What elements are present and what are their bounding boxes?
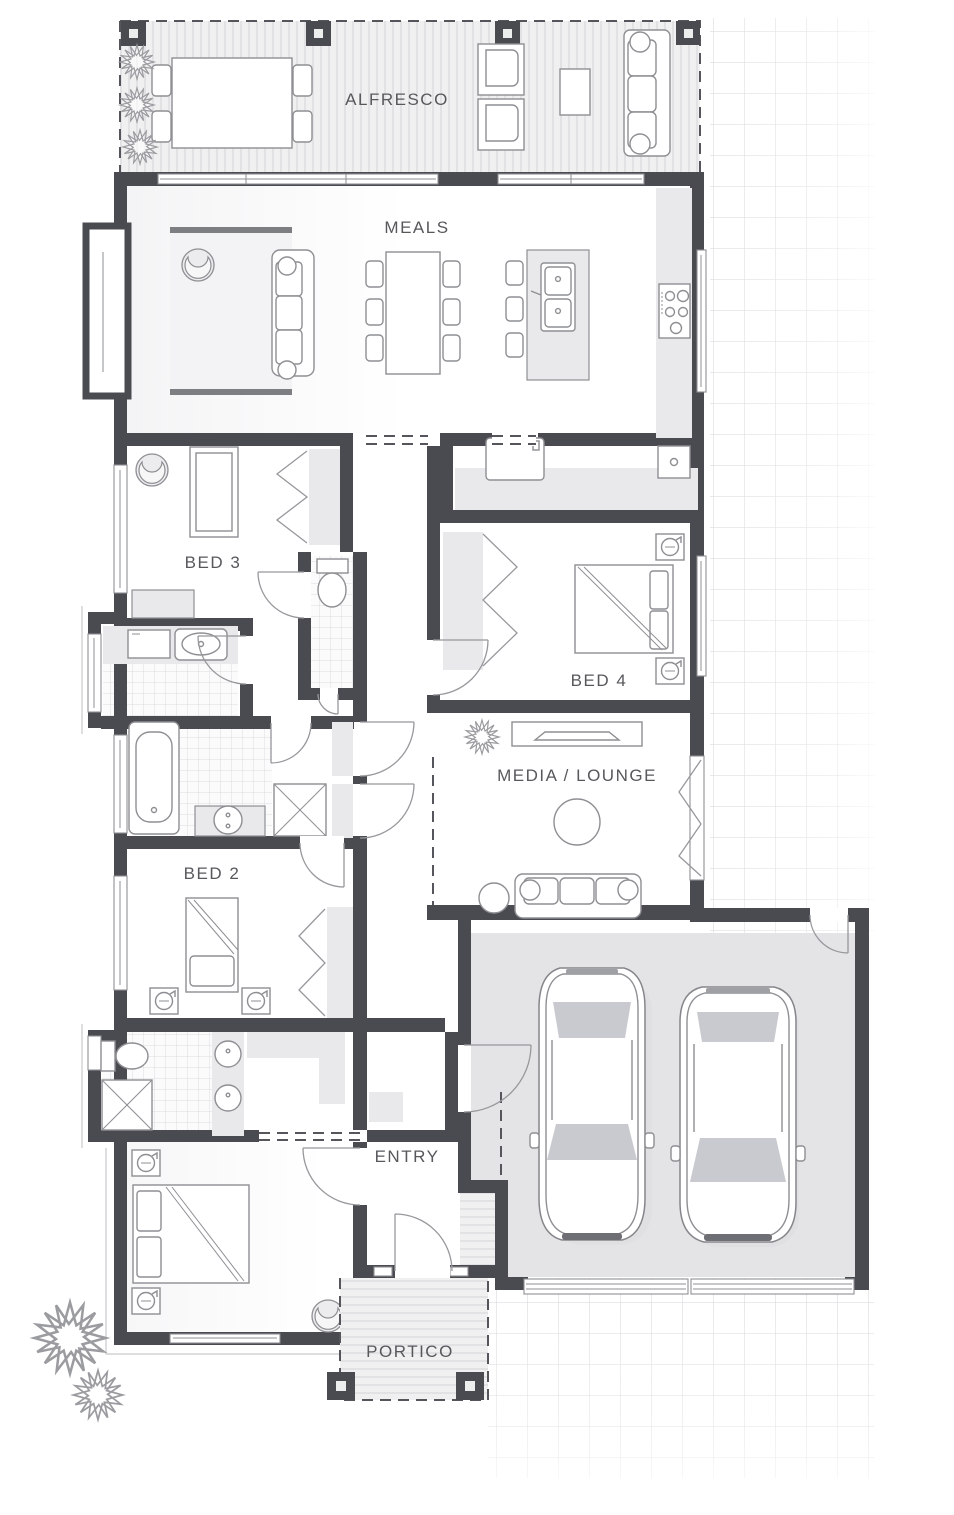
bed3-robe-bifold <box>277 451 307 543</box>
bath-basin <box>214 806 242 834</box>
kitchen-island <box>506 250 589 380</box>
room-label-bed3: BED 3 <box>185 553 242 572</box>
bed3-dresser <box>132 590 194 618</box>
wc-door <box>318 694 338 714</box>
bed4-lamp-top <box>656 534 684 560</box>
laundry-tub <box>658 446 690 478</box>
dining-table <box>366 252 460 374</box>
floor-plan: ALFRESCO <box>0 0 954 1515</box>
garden-plant-small <box>66 1363 130 1427</box>
meals-bay-window <box>86 226 128 396</box>
bed3-robe <box>309 449 340 545</box>
media-room: MEDIA / LOUNGE <box>433 715 704 918</box>
ensuite-basin-1 <box>215 1041 241 1067</box>
room-label-media: MEDIA / LOUNGE <box>497 766 657 785</box>
portico: PORTICO <box>327 1278 488 1400</box>
ensuite <box>101 1032 367 1142</box>
sedan-windshield <box>547 1124 637 1160</box>
linen-door-1 <box>360 722 414 776</box>
bed4-room: BED 4 <box>443 532 684 690</box>
suv-rear-window <box>697 1012 779 1042</box>
master-lamp-bottom <box>132 1288 160 1314</box>
bed2-robe-bifold <box>299 909 325 1016</box>
entry-niche <box>369 1092 403 1122</box>
wir-shelf-top <box>247 1032 345 1058</box>
car-sedan <box>530 968 654 1245</box>
media-tv-unit <box>512 722 642 746</box>
bed2-lamp-right <box>242 988 270 1014</box>
front-door <box>395 1214 452 1271</box>
laundry-room <box>103 626 238 664</box>
floor-plan-svg: ALFRESCO <box>0 0 954 1515</box>
room-label-bed4: BED 4 <box>571 671 628 690</box>
suv-windshield <box>690 1138 786 1182</box>
sedan-rear-window <box>553 1002 631 1038</box>
media-ottoman <box>554 799 600 845</box>
wc-room <box>317 559 348 607</box>
ensuite-master-opening <box>259 1130 367 1142</box>
wir-shelf-side <box>319 1058 345 1104</box>
media-side-table <box>479 883 509 913</box>
room-label-bed2: BED 2 <box>184 864 241 883</box>
ensuite-window <box>88 1036 101 1070</box>
room-label-entry: ENTRY <box>375 1147 440 1166</box>
driveway-grid <box>488 1278 874 1478</box>
bed2-door <box>300 843 344 887</box>
living-sofa <box>272 250 314 379</box>
media-sofa <box>515 874 641 918</box>
ensuite-cistern <box>101 1041 115 1071</box>
media-plant <box>460 715 504 759</box>
master-bed <box>133 1185 249 1283</box>
media-bifold-doors <box>679 756 704 880</box>
bathtub <box>129 722 179 834</box>
room-label-alfresco: ALFRESCO <box>345 90 449 109</box>
garden-plant-large <box>24 1292 117 1385</box>
outdoor-coffee-table <box>560 69 590 115</box>
entry-sidelight-right <box>450 1267 468 1276</box>
bed4-bed <box>575 565 673 653</box>
tv-cabinet <box>170 227 292 233</box>
site-grid-right <box>710 18 875 935</box>
alfresco: ALFRESCO <box>120 21 700 178</box>
meals-hall-opening <box>366 433 428 446</box>
kitchen-bench <box>656 188 692 438</box>
bed2-room: BED 2 <box>150 864 353 1018</box>
outdoor-sofa <box>624 30 670 156</box>
wc-toilet <box>318 573 346 607</box>
bed3-bed <box>190 447 238 537</box>
room-label-meals: MEALS <box>384 218 449 237</box>
ensuite-shower <box>102 1080 152 1130</box>
ensuite-basin-2 <box>215 1085 241 1111</box>
outdoor-dining-table <box>152 58 312 148</box>
bed2-bed <box>186 898 238 992</box>
bed3-door <box>258 572 304 618</box>
bed4-robe <box>443 532 483 670</box>
cabinet-bar <box>170 389 292 395</box>
bed3-chair <box>136 454 168 486</box>
car-suv <box>671 987 805 1247</box>
linen-closet-1 <box>332 722 353 776</box>
bath-shower <box>274 784 326 836</box>
linen-closet-2 <box>332 784 353 838</box>
bed4-lamp-bottom <box>656 658 684 684</box>
ensuite-toilet <box>116 1043 148 1069</box>
entry-sidelight-left <box>374 1267 392 1276</box>
master-lamp-top <box>132 1150 160 1176</box>
living-armchair <box>182 249 214 281</box>
wc-cistern <box>317 559 348 573</box>
linen-door-2 <box>360 784 414 838</box>
bed2-lamp-left <box>150 988 178 1014</box>
bed2-robe <box>327 907 353 1018</box>
room-label-portico: PORTICO <box>366 1342 454 1361</box>
